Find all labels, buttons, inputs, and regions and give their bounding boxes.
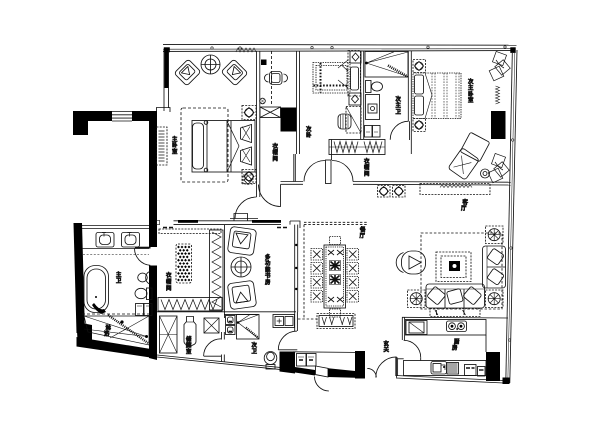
svg-text:次主卫: 次主卫: [396, 95, 402, 115]
svg-text:主卫: 主卫: [116, 271, 122, 285]
svg-text:多功能书房: 多功能书房: [265, 253, 271, 286]
svg-text:客厅: 客厅: [461, 198, 469, 212]
svg-text:主卧室: 主卧室: [172, 135, 178, 155]
svg-text:玄关: 玄关: [384, 340, 390, 354]
svg-text:次主卧室: 次主卧室: [468, 78, 474, 105]
svg-text:次卫: 次卫: [252, 341, 258, 355]
svg-text:储藏室: 储藏室: [186, 335, 192, 355]
svg-text:次卧: 次卧: [306, 125, 312, 139]
svg-text:衣帽间: 衣帽间: [273, 142, 279, 162]
svg-text:衣帽间: 衣帽间: [364, 157, 370, 177]
svg-text:衣帽间: 衣帽间: [166, 271, 172, 292]
svg-text:厨房: 厨房: [452, 339, 460, 352]
svg-text:淋浴: 淋浴: [104, 324, 112, 338]
svg-text:餐厅: 餐厅: [360, 226, 367, 240]
